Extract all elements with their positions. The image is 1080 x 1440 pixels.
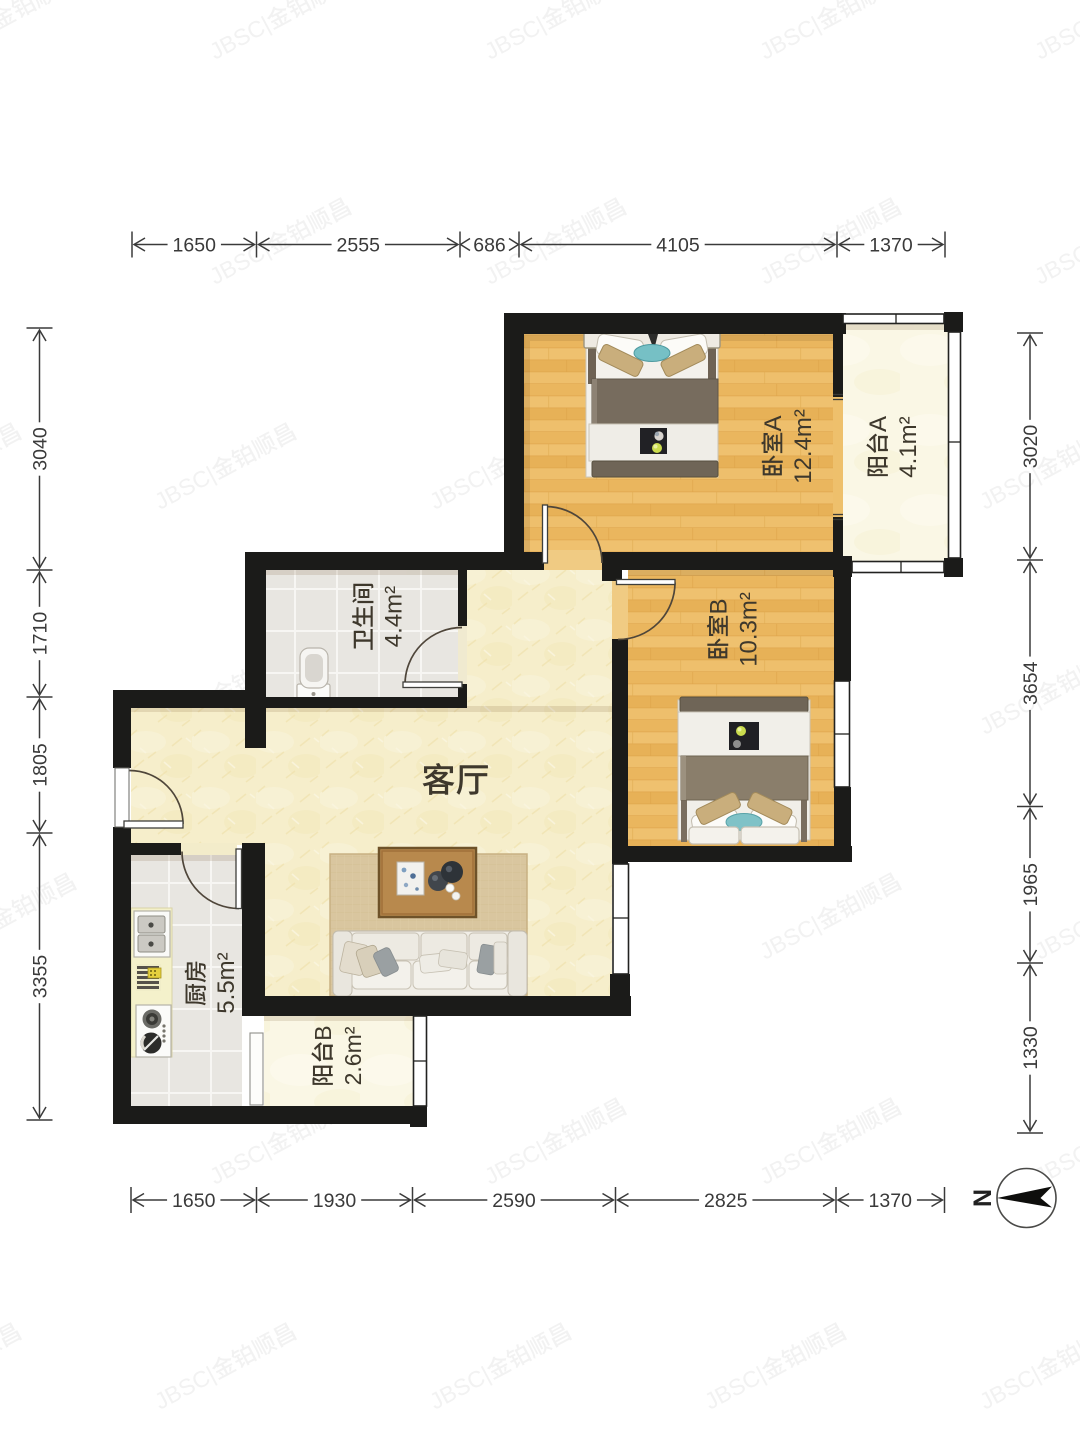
- svg-text:2825: 2825: [704, 1190, 748, 1212]
- svg-text:4.1m²: 4.1m²: [895, 416, 922, 477]
- svg-text:5.5m²: 5.5m²: [213, 952, 240, 1013]
- svg-text:10.3m²: 10.3m²: [736, 592, 763, 667]
- svg-text:1710: 1710: [29, 612, 51, 656]
- svg-text:3355: 3355: [29, 955, 51, 999]
- svg-text:12.4m²: 12.4m²: [790, 409, 817, 484]
- svg-text:1930: 1930: [313, 1190, 357, 1212]
- svg-text:1330: 1330: [1020, 1026, 1042, 1070]
- svg-text:1370: 1370: [869, 234, 913, 256]
- svg-text:4105: 4105: [656, 234, 700, 256]
- svg-text:3654: 3654: [1020, 661, 1042, 705]
- svg-text:4.4m²: 4.4m²: [381, 586, 408, 647]
- svg-text:2590: 2590: [492, 1190, 536, 1212]
- svg-text:A: A: [865, 416, 892, 432]
- svg-text:1650: 1650: [172, 1190, 216, 1212]
- svg-text:2555: 2555: [337, 234, 381, 256]
- svg-text:3020: 3020: [1020, 425, 1042, 469]
- svg-text:B: B: [310, 1025, 336, 1040]
- svg-text:B: B: [706, 598, 733, 614]
- svg-text:686: 686: [473, 234, 506, 256]
- svg-text:1370: 1370: [869, 1190, 913, 1212]
- svg-text:1805: 1805: [29, 743, 51, 787]
- svg-text:1650: 1650: [173, 234, 217, 256]
- svg-text:N: N: [969, 1189, 997, 1207]
- svg-text:1965: 1965: [1020, 863, 1042, 907]
- svg-text:2.6m²: 2.6m²: [340, 1026, 366, 1085]
- svg-text:A: A: [760, 415, 787, 431]
- svg-text:3040: 3040: [29, 427, 51, 471]
